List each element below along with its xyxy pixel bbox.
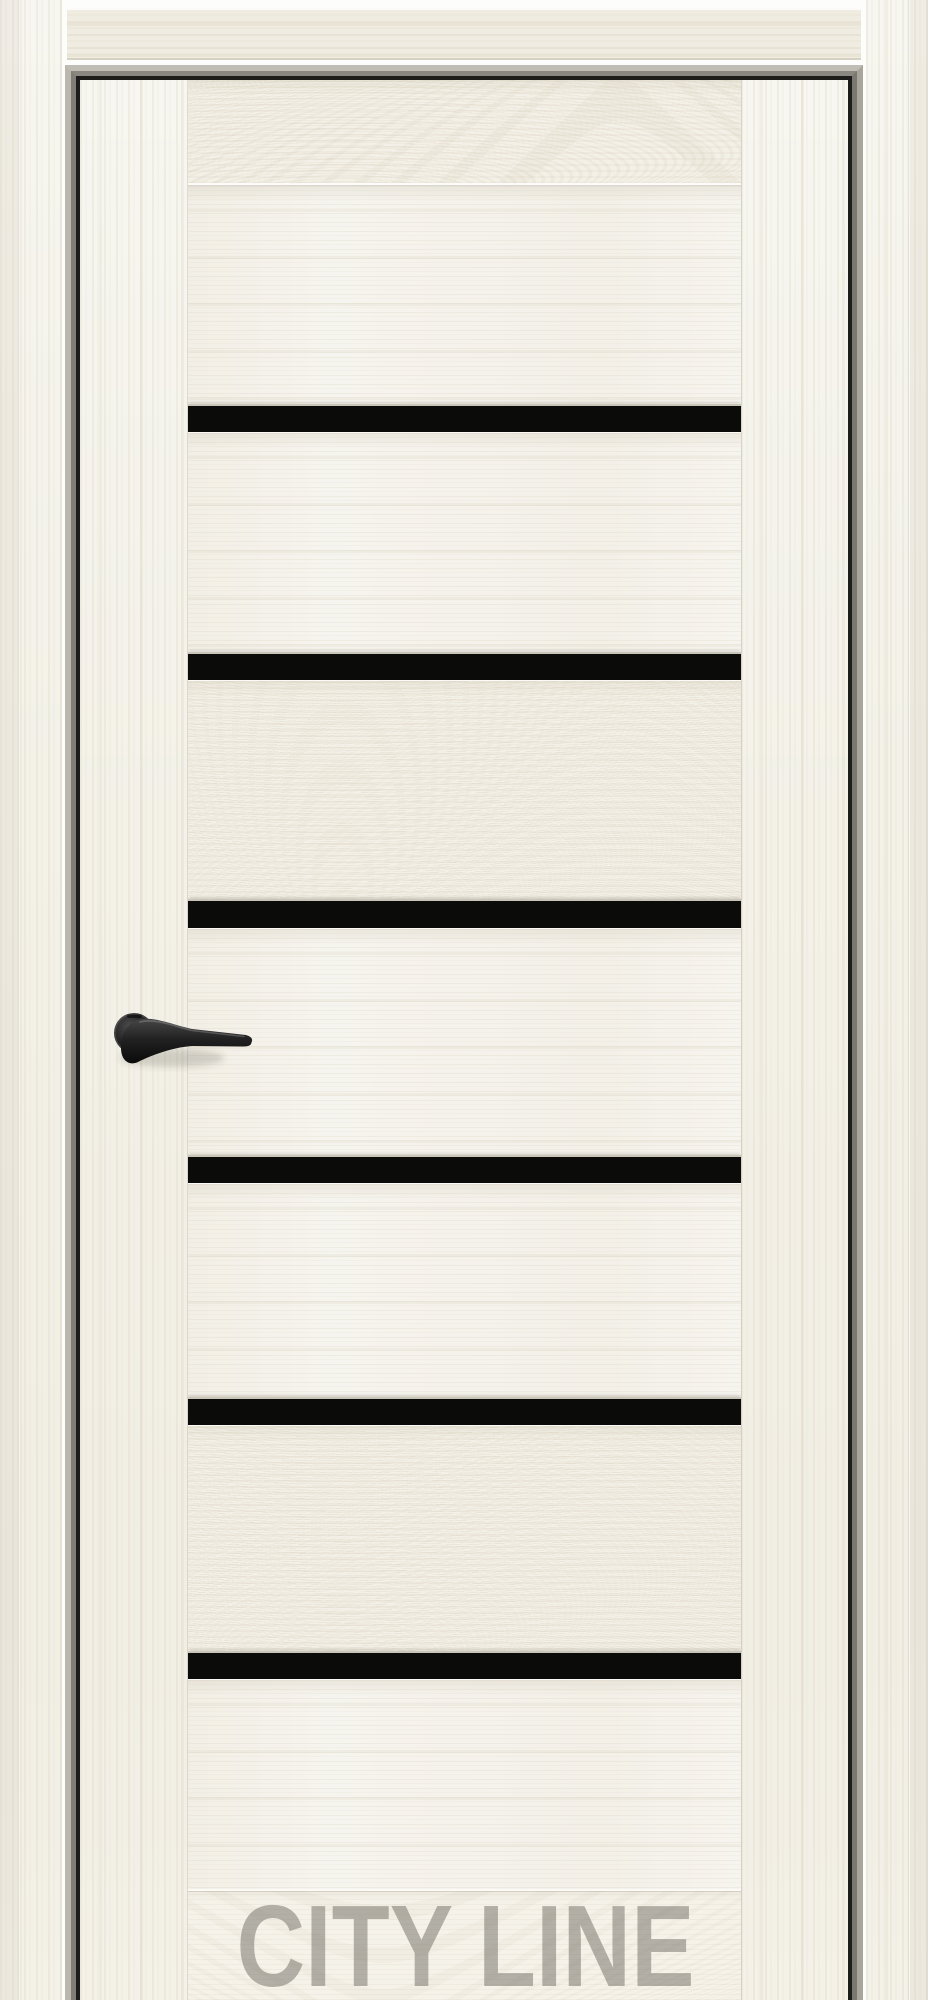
wood-board bbox=[188, 186, 741, 404]
wood-board bbox=[188, 1184, 741, 1397]
door-center-panels bbox=[188, 80, 741, 2000]
casing-right-outer-shade bbox=[910, 0, 928, 2000]
door-handle bbox=[100, 1000, 270, 1080]
glass-stripe bbox=[188, 652, 741, 681]
glass-stripe bbox=[188, 899, 741, 929]
wood-board bbox=[188, 1680, 741, 1889]
casing-left-outer-shade bbox=[0, 0, 18, 2000]
door-casing-left bbox=[0, 0, 62, 2000]
door-casing-right bbox=[866, 0, 928, 2000]
glass-stripe bbox=[188, 1397, 741, 1426]
door-product-photo: CITY LINE bbox=[0, 0, 928, 2000]
handle-rosette-notch bbox=[127, 1015, 142, 1019]
brand-watermark: CITY LINE bbox=[240, 1892, 692, 2000]
wood-board bbox=[188, 681, 741, 899]
door-casing-head bbox=[67, 8, 861, 60]
wood-board bbox=[188, 433, 741, 652]
glass-stripe bbox=[188, 1651, 741, 1680]
door-stile-right bbox=[741, 80, 848, 2000]
wood-board bbox=[188, 80, 741, 186]
casing-left-seam bbox=[18, 0, 20, 2000]
glass-stripe bbox=[188, 1155, 741, 1184]
wood-board bbox=[188, 1426, 741, 1651]
glass-stripe bbox=[188, 404, 741, 433]
wood-board bbox=[188, 929, 741, 1155]
